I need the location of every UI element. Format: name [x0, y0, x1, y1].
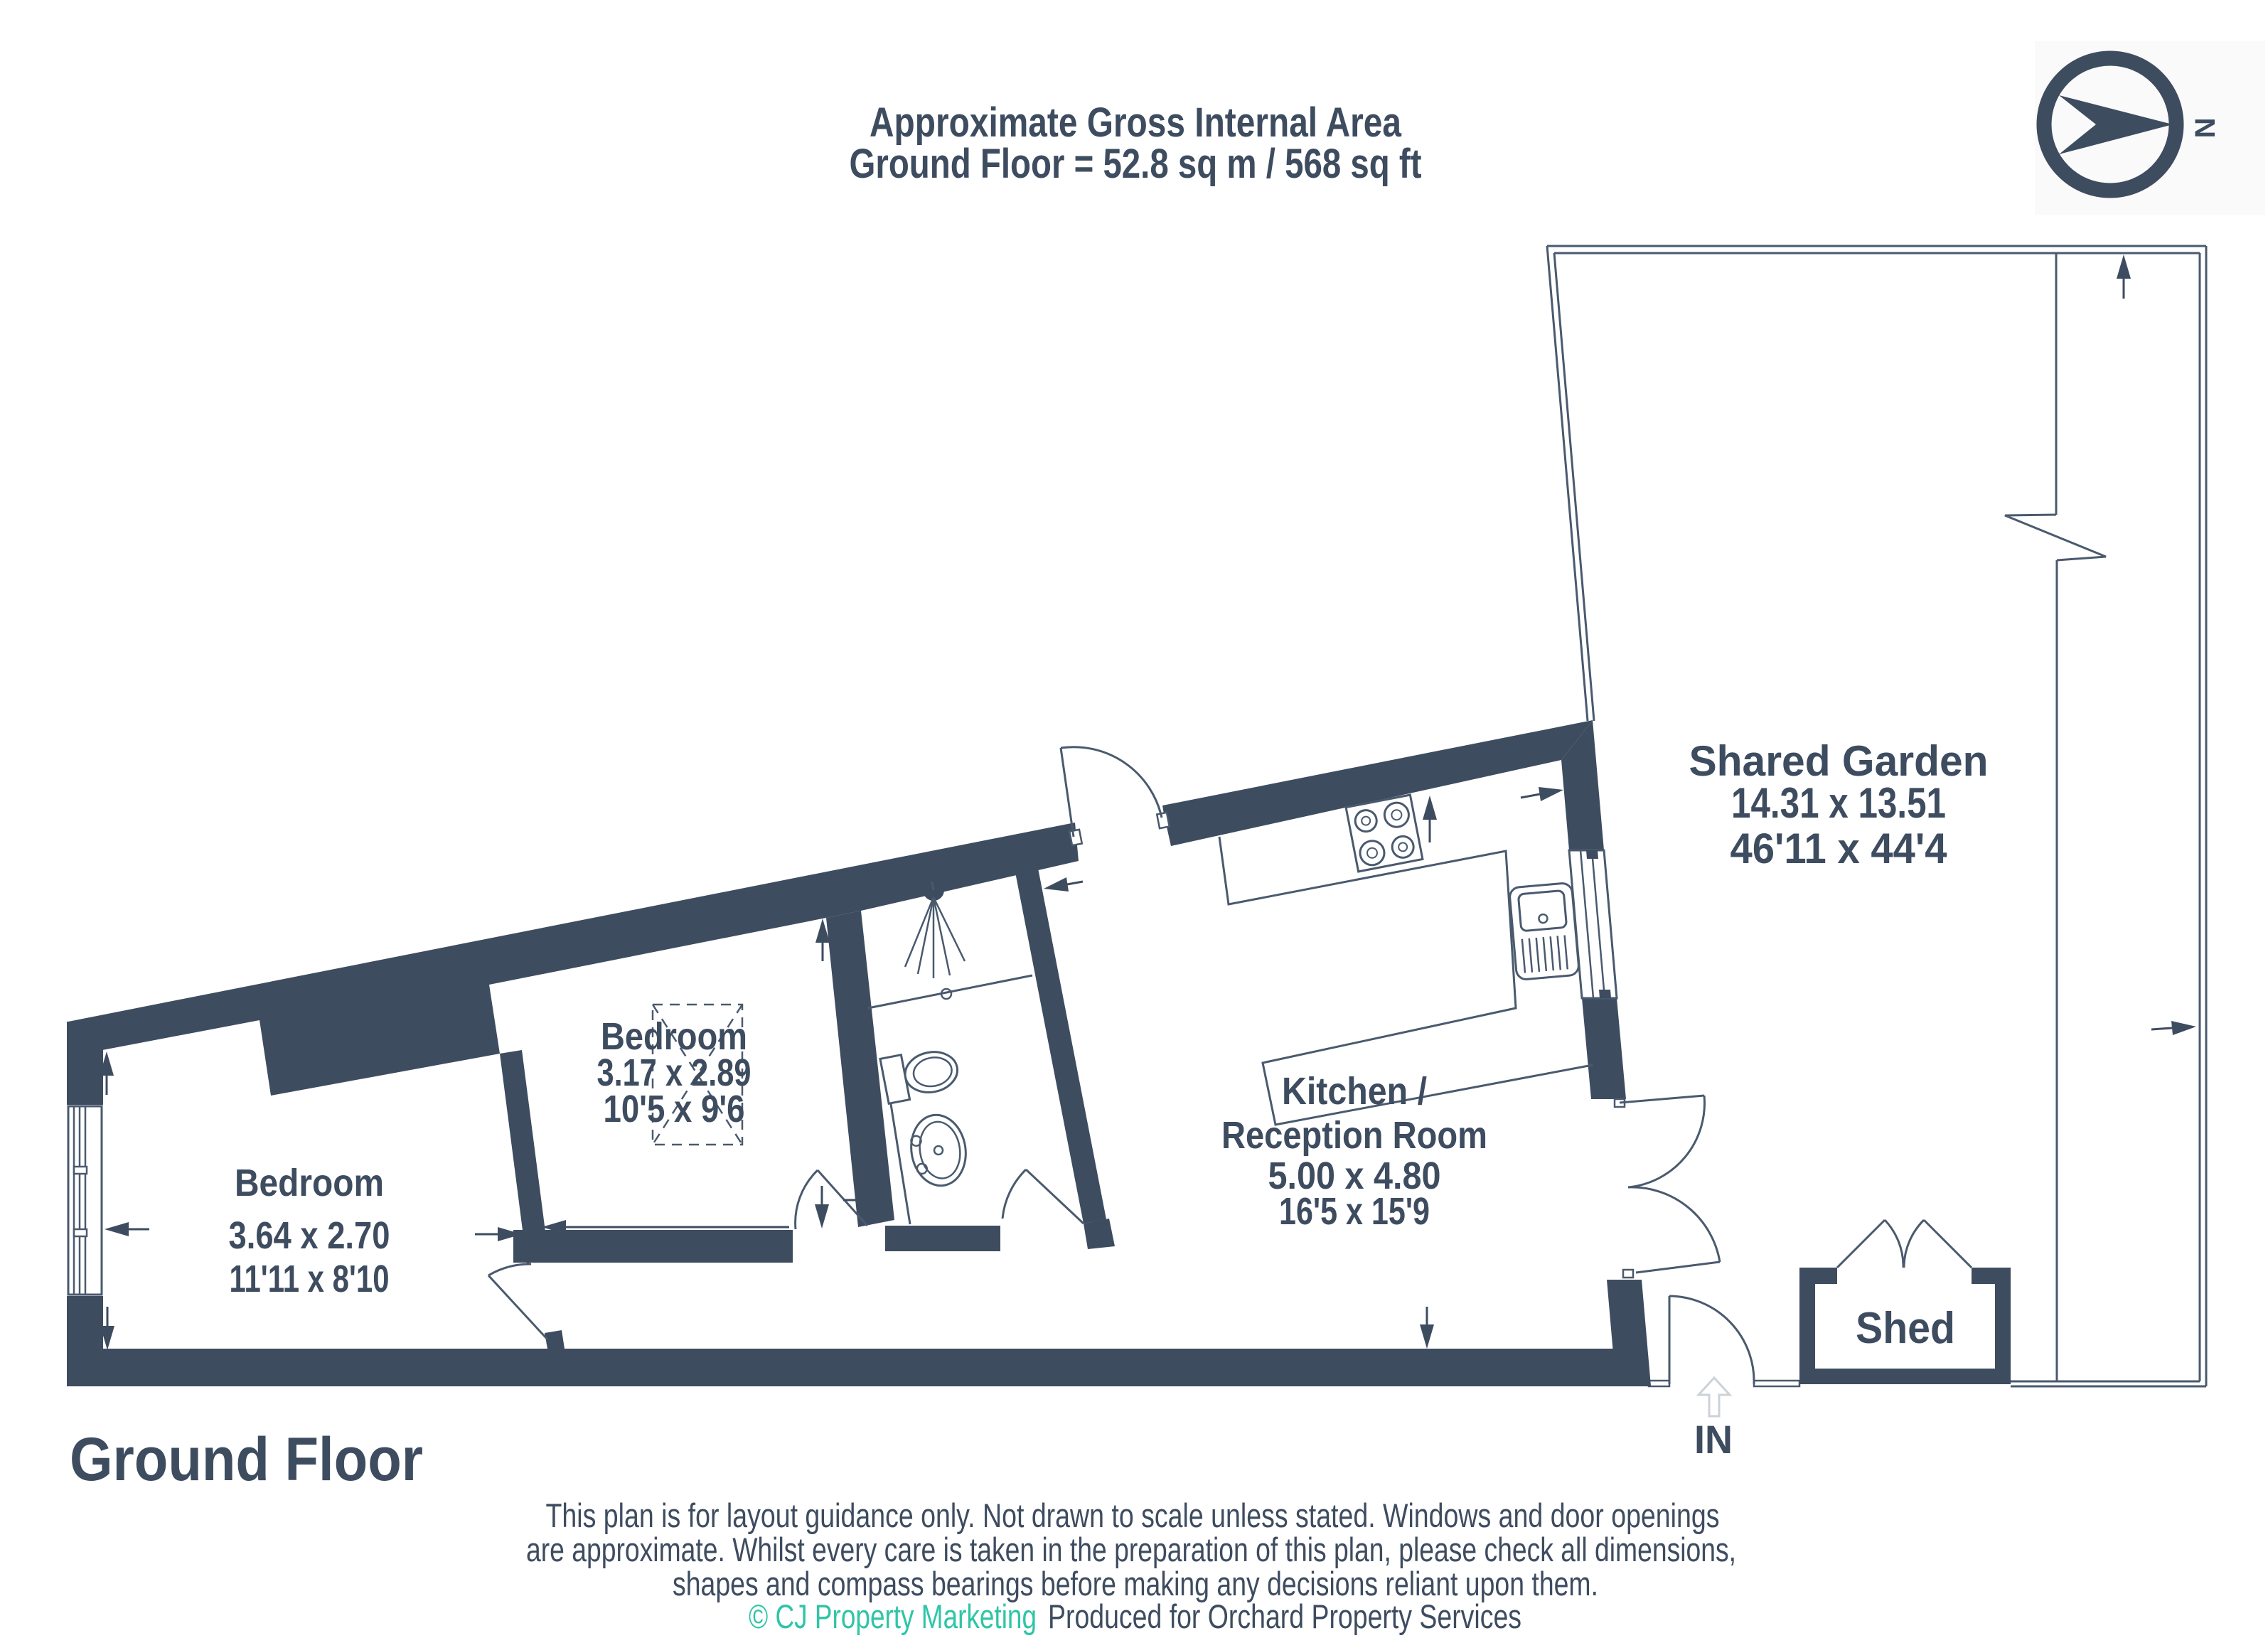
svg-text:This plan is for layout guidan: This plan is for layout guidance only. N…	[546, 1497, 1720, 1534]
svg-text:3.64 x 2.70: 3.64 x 2.70	[229, 1214, 390, 1257]
svg-text:16'5 x 15'9: 16'5 x 15'9	[1279, 1190, 1430, 1233]
svg-text:11'11 x 8'10: 11'11 x 8'10	[230, 1258, 390, 1300]
svg-text:Bedroom: Bedroom	[235, 1162, 384, 1204]
svg-text:© CJ Property Marketing: © CJ Property Marketing	[749, 1597, 1037, 1635]
svg-text:Reception Room: Reception Room	[1221, 1114, 1487, 1157]
svg-text:N: N	[2188, 118, 2220, 139]
svg-text:Shared Garden: Shared Garden	[1689, 737, 1989, 785]
svg-text:Approximate Gross Internal Are: Approximate Gross Internal Area	[870, 100, 1402, 146]
svg-text:Produced for Orchard Property: Produced for Orchard Property Services	[1048, 1597, 1521, 1635]
svg-text:IN: IN	[1694, 1417, 1733, 1462]
svg-text:are approximate. Whilst every: are approximate. Whilst every care is ta…	[526, 1531, 1736, 1568]
svg-text:Ground Floor: Ground Floor	[70, 1425, 423, 1494]
svg-text:Shed: Shed	[1856, 1304, 1955, 1353]
svg-text:10'5 x 9'6: 10'5 x 9'6	[604, 1088, 745, 1130]
svg-text:14.31 x 13.51: 14.31 x 13.51	[1731, 779, 1946, 827]
svg-text:46'11 x 44'4: 46'11 x 44'4	[1731, 825, 1948, 872]
svg-text:Ground Floor = 52.8 sq m / 568: Ground Floor = 52.8 sq m / 568 sq ft	[850, 141, 1422, 187]
svg-text:Kitchen /: Kitchen /	[1282, 1070, 1427, 1113]
